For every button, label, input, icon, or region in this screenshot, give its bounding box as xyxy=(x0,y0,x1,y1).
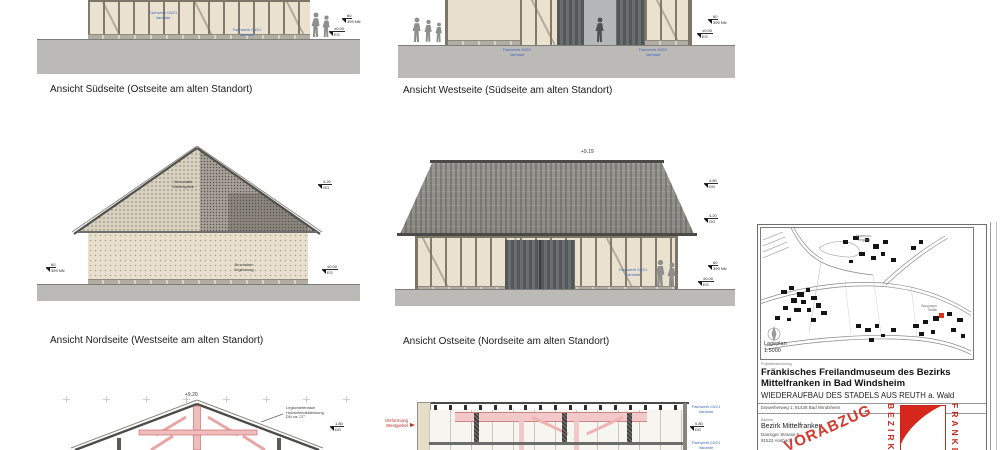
label-view-west: Ansicht Westseite (Südseite am alten Sta… xyxy=(403,85,612,96)
map-label-entrance-line2: eingang xyxy=(858,238,870,242)
deformation-note: Verformung Westgiebel xyxy=(378,418,408,428)
label-view-east: Ansicht Ostseite (Nordseite am alten Sta… xyxy=(403,336,609,347)
floor-beam xyxy=(429,442,687,445)
elevation-marker: 60 399 NN xyxy=(708,260,727,271)
fachwerk-tag: Fachwerk 03/21 Variante xyxy=(610,268,656,277)
fachwerk-tag: Fachwerk 03/21 Variante xyxy=(140,11,186,20)
east-elevation-wall xyxy=(415,236,678,291)
marker-level: EG xyxy=(703,282,709,287)
marker-level: DG xyxy=(695,427,701,432)
level-triangle-icon xyxy=(698,282,702,286)
elevation-marker: ±0.00 EG xyxy=(329,26,345,37)
marker-level: 399 NN xyxy=(347,19,361,24)
peak-elevation-label: +9.20 xyxy=(185,392,198,398)
level-triangle-icon xyxy=(708,20,712,24)
elevation-marker: ±0.00 EG xyxy=(697,28,713,39)
corner-post xyxy=(445,0,448,45)
fachwerk-tag: Fachwerk 03/21 Variante xyxy=(630,48,676,57)
logo-word-bezirk: BEZIRK xyxy=(886,403,896,450)
corner-post xyxy=(415,238,418,291)
elevation-marker: 60 399 NN xyxy=(708,14,727,25)
fachwerk-tag-line2: Variante xyxy=(688,410,724,415)
fachwerk-tag-line2: Variante xyxy=(494,53,540,58)
fachwerk-tag: Fachwerk 03/21 Variante xyxy=(494,48,540,57)
level-triangle-icon xyxy=(690,427,694,431)
elevation-marker: 4.80 DG xyxy=(704,178,718,189)
peak-elevation-label: +9.19 xyxy=(581,149,594,155)
level-triangle-icon xyxy=(329,32,333,36)
section-post xyxy=(627,413,632,444)
barn-door xyxy=(505,240,575,291)
section-east-post xyxy=(683,403,687,450)
bezirk-logo xyxy=(900,405,946,450)
gable-note-line2: Giebelspitze xyxy=(163,185,203,190)
elevation-marker: ±0.00 EG xyxy=(322,264,338,275)
fachwerk-tag-line2: Variante xyxy=(688,446,724,450)
elevation-marker: 0.80 DG xyxy=(690,421,704,432)
elevation-marker: 60 399 NN xyxy=(342,13,361,24)
level-triangle-icon xyxy=(697,34,701,38)
corner-post xyxy=(688,0,692,45)
north-roof-edge xyxy=(60,138,360,238)
red-arrow-icon xyxy=(410,423,415,427)
marker-level: 399 NN xyxy=(713,266,727,271)
site-map-box: Museums- eingang Baugruppe Stadel Lagepl… xyxy=(760,227,974,360)
elevation-marker: ±0.00 EG xyxy=(698,276,714,287)
section-roof-line xyxy=(417,402,689,404)
person-figure xyxy=(412,16,422,44)
site-map: Museums- eingang Baugruppe Stadel xyxy=(761,228,971,357)
person-figure xyxy=(311,12,321,38)
section-post xyxy=(474,413,479,444)
fachwerk-panel xyxy=(645,0,688,45)
level-triangle-icon xyxy=(342,19,346,23)
marker-level: 399 NN xyxy=(713,20,727,25)
fachwerk-tag: Fachwerk 03/21 Variante xyxy=(688,441,724,450)
person-figure xyxy=(595,15,605,45)
marker-level: DG xyxy=(335,427,341,432)
map-caption-scale: 1:5000 xyxy=(764,348,781,355)
title-block: Museums- eingang Baugruppe Stadel Lagepl… xyxy=(757,224,987,450)
person-figure xyxy=(655,258,666,289)
level-triangle-icon xyxy=(330,427,334,431)
fachwerk-tag-line2: Variante xyxy=(140,16,186,21)
elevation-marker: 1.80 DG xyxy=(330,421,344,432)
level-triangle-icon xyxy=(318,185,322,189)
fachwerk-tag-line2: Variante xyxy=(224,33,270,38)
marker-level: EG xyxy=(702,34,708,39)
sheet-frame-line xyxy=(996,222,997,450)
project-subtitle: WIEDERAUFBAU DES STADELS AUS REUTH a. Wa… xyxy=(761,391,954,400)
site-marker-red xyxy=(939,313,944,318)
project-label: Projektbezeichnung xyxy=(761,362,792,366)
person-figure xyxy=(667,261,677,289)
person-figure xyxy=(435,21,443,44)
west-elevation-wall xyxy=(445,0,692,45)
map-label-site-line2: Stadel xyxy=(928,308,937,312)
label-view-south: Ansicht Südseite (Ostseite am alten Stan… xyxy=(50,84,252,95)
marker-level: 399 NN xyxy=(51,268,65,273)
fachwerk-panel xyxy=(520,0,559,45)
elevation-marker: 60 399 NN xyxy=(46,262,65,273)
fachwerk-tag: Fachwerk 03/21 Variante xyxy=(688,405,724,414)
masonry-note-line2: Ergänzung xyxy=(224,268,264,273)
marker-level: EG xyxy=(327,270,333,275)
west-ground-band xyxy=(398,45,735,78)
north-ground-band xyxy=(37,284,360,301)
door-seam xyxy=(539,240,541,291)
section-post xyxy=(562,413,567,444)
elevation-marker: 4.20 OG xyxy=(704,213,718,224)
level-triangle-icon xyxy=(322,270,326,274)
masonry-note: Bruchstein Ergänzung xyxy=(224,263,264,272)
marker-level: DG xyxy=(709,184,715,189)
sheet-frame-line xyxy=(990,222,991,450)
logo-swoosh-icon xyxy=(901,406,943,450)
project-title-line1: Fränkisches Freilandmuseum des Bezirks xyxy=(761,367,951,378)
roof-construction-note: Legschieferdach Holzschindeldeckung DN c… xyxy=(286,406,338,420)
fachwerk-tag-line2: Variante xyxy=(610,273,656,278)
door-opening xyxy=(584,0,616,45)
east-ground-band xyxy=(395,289,735,306)
level-triangle-icon xyxy=(704,184,708,188)
map-caption-name: Lageplan xyxy=(764,341,787,348)
ridge-line xyxy=(430,160,664,163)
plan-sheet: Fachwerk 03/21 Variante Fachwerk 03/21 V… xyxy=(0,0,1000,450)
fachwerk-tag: Fachwerk 03/21 Variante xyxy=(224,28,270,37)
level-triangle-icon xyxy=(46,268,50,272)
north-lower-wall xyxy=(88,233,308,279)
elevation-marker: 4.20 OG xyxy=(318,179,332,190)
label-view-north: Ansicht Nordseite (Westseite am alten St… xyxy=(50,335,263,346)
level-triangle-icon xyxy=(704,219,708,223)
project-title-line2: Mittelfranken in Bad Windsheim xyxy=(761,378,905,389)
marker-level: EG xyxy=(334,32,340,37)
person-figure xyxy=(424,18,433,44)
project-address: Eisweiherweg 1, 91438 Bad Windsheim xyxy=(761,405,840,410)
fachwerk-tag-line2: Variante xyxy=(630,53,676,58)
logo-word-franken: FRANKEN xyxy=(950,403,960,450)
level-triangle-icon xyxy=(708,266,712,270)
east-roof xyxy=(400,163,694,234)
south-ground-band xyxy=(37,39,360,74)
roof-note-line3: DN ca. 27° xyxy=(286,415,338,420)
deform-note-line2: Westgiebel xyxy=(378,423,408,428)
marker-level: OG xyxy=(709,219,715,224)
marker-level: OG xyxy=(323,185,329,190)
gable-note: Verschalte Giebelspitze xyxy=(163,180,203,189)
client-label: Bauherr xyxy=(761,418,773,422)
